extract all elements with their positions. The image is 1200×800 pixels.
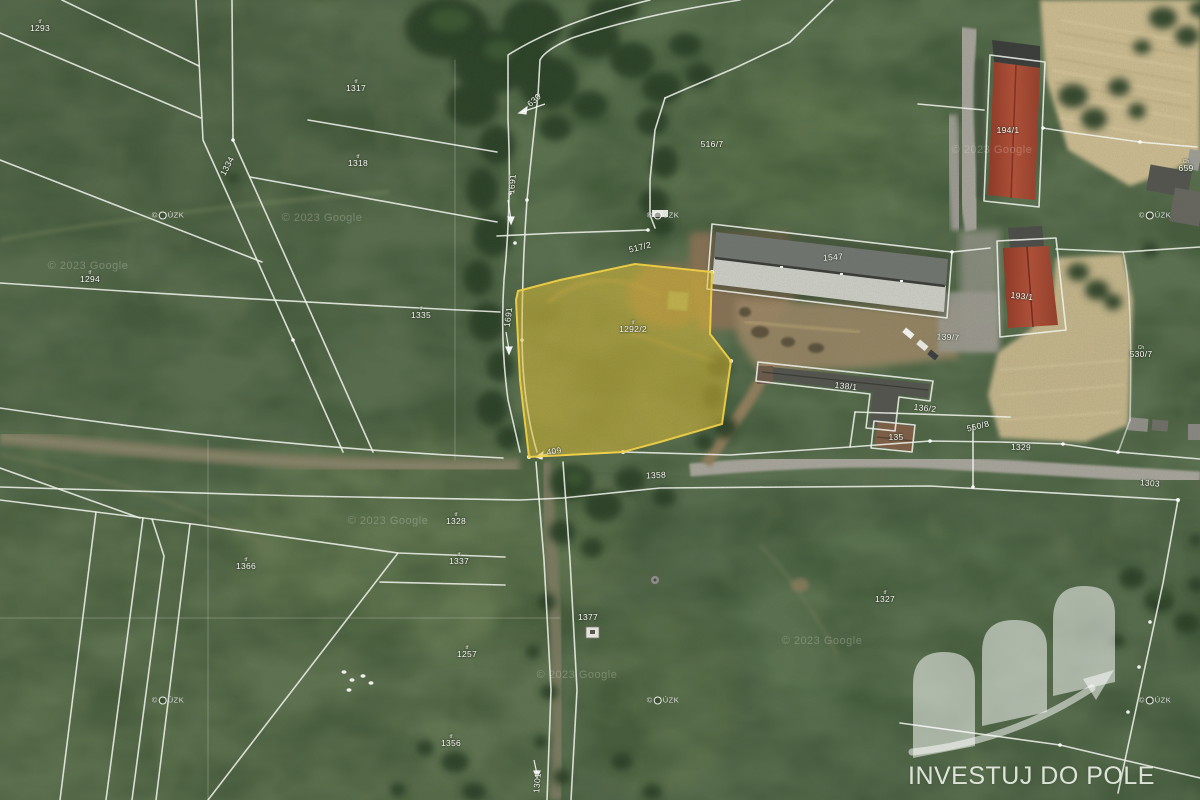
logo-bar-icon — [982, 620, 1047, 726]
map-canvas[interactable]: ©ÚZK©ÚZK©ÚZK©ÚZK©ÚZK©ÚZK© 2023 Google© 2… — [0, 0, 1200, 800]
satellite-basemap — [0, 0, 1200, 800]
brand-logo-text: INVESTUJ DO POLE — [908, 762, 1124, 791]
